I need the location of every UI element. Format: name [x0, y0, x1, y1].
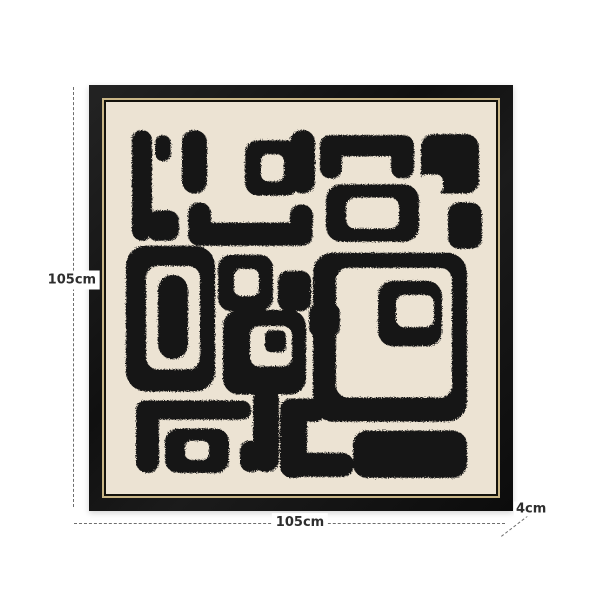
frame-inner-trim [104, 100, 498, 496]
painting-shape [326, 184, 419, 241]
artwork-canvas [106, 102, 496, 494]
painting-shape [290, 205, 313, 235]
painting-shape [240, 441, 262, 472]
painting-shape [245, 140, 299, 195]
painting-shape [278, 271, 311, 311]
painting-shape [218, 255, 273, 311]
abstract-painting [106, 102, 496, 494]
painting-shape [182, 130, 207, 193]
painting-shape [223, 310, 306, 394]
depth-dimension-label: 4cm [514, 502, 548, 517]
painting-shape [147, 211, 179, 241]
height-dimension-label: 105cm [44, 271, 100, 290]
height-dimension-line [73, 87, 74, 507]
painting-shape [378, 281, 442, 346]
painting-shape [391, 135, 414, 178]
painting-shape [155, 135, 171, 161]
painting-shape [158, 275, 188, 359]
painting-shape [448, 203, 482, 249]
painting-shape [280, 453, 354, 477]
painting-shape [353, 431, 467, 478]
painting-shape [136, 401, 159, 473]
artwork-frame [89, 85, 513, 511]
depth-dimension-line [501, 515, 529, 537]
painting-shape [265, 330, 286, 352]
painting-shape [165, 429, 229, 473]
product-diagram: 105cm 105cm 4cm [0, 0, 600, 600]
painting-shape [320, 135, 342, 178]
frame-gold-trim [102, 98, 500, 498]
painting-cutout [420, 174, 443, 194]
width-dimension-label: 105cm [272, 513, 328, 532]
